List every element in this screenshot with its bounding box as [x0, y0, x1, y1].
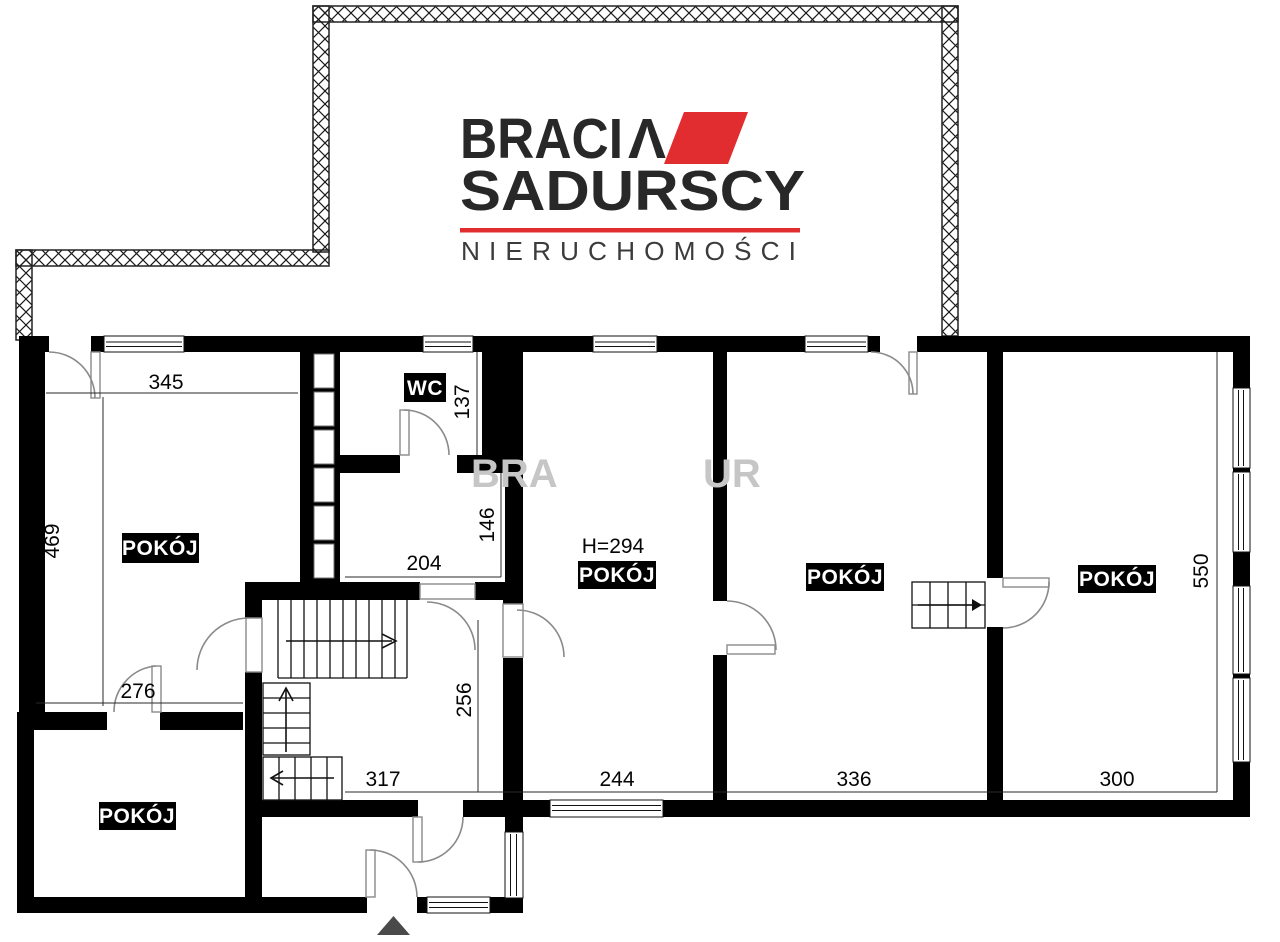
dim-550: 550	[1190, 553, 1213, 588]
door	[49, 352, 100, 398]
room-label-middle: POKÓJ	[578, 561, 656, 589]
door	[1003, 578, 1049, 628]
staircase-winder	[912, 582, 985, 628]
dim-469: 469	[41, 523, 64, 558]
window	[1233, 678, 1250, 762]
watermark-fragment-right: UR	[703, 452, 761, 496]
dim-204: 204	[406, 552, 441, 575]
door	[727, 601, 776, 654]
floor-plan-drawing: 345 469 276 137 146 204 256 317 244 336 …	[0, 0, 1280, 942]
svg-text:POKÓJ: POKÓJ	[1079, 567, 1155, 591]
brand-logo: BRACI Λ SADURSCY NIERUCHOMOŚCI	[460, 107, 805, 266]
dim-336: 336	[836, 768, 871, 791]
room-label-right: POKÓJ	[1078, 565, 1156, 593]
door	[871, 352, 917, 394]
window	[1233, 586, 1250, 674]
dim-244: 244	[599, 768, 634, 791]
door	[420, 584, 475, 650]
watermark: BRA UR	[471, 452, 761, 496]
window	[1233, 472, 1250, 552]
window	[1233, 388, 1250, 468]
window	[427, 897, 490, 913]
ceiling-height-note: H=294	[582, 535, 645, 558]
door	[400, 410, 449, 455]
logo-divider-line	[460, 228, 800, 233]
window	[805, 336, 868, 352]
staircase-down-flight	[263, 683, 310, 755]
svg-text:POKÓJ: POKÓJ	[579, 563, 655, 587]
window	[505, 832, 523, 898]
window	[423, 336, 473, 352]
floor-plan-page: 345 469 276 137 146 204 256 317 244 336 …	[0, 0, 1280, 942]
door	[197, 618, 262, 672]
walls	[17, 336, 1250, 913]
dim-300: 300	[1099, 768, 1134, 791]
dim-137: 137	[451, 384, 474, 419]
logo-subtitle: NIERUCHOMOŚCI	[461, 236, 805, 266]
room-label-336: POKÓJ	[806, 563, 884, 591]
logo-red-parallelogram-icon	[664, 112, 748, 164]
door	[503, 604, 564, 657]
window	[593, 336, 657, 352]
dim-317: 317	[365, 768, 400, 791]
dim-276: 276	[120, 680, 155, 703]
svg-text:POKÓJ: POKÓJ	[122, 536, 198, 560]
room-label-bottom-left: POKÓJ	[99, 802, 176, 830]
entrance-arrow-icon	[377, 916, 410, 935]
window	[104, 336, 184, 352]
room-label-wc: WC	[404, 373, 446, 402]
staircase-lower-flight	[263, 757, 342, 800]
room-label-top-left: POKÓJ	[122, 533, 199, 563]
door	[366, 850, 417, 897]
svg-text:POKÓJ: POKÓJ	[99, 804, 175, 828]
logo-word2: SADURSCY	[460, 159, 805, 223]
dim-256: 256	[453, 682, 476, 717]
dim-146: 146	[476, 507, 499, 542]
window	[550, 800, 663, 817]
staircase-main	[278, 600, 407, 678]
watermark-fragment-left: BRA	[471, 452, 558, 496]
dim-345: 345	[148, 371, 183, 394]
door	[413, 817, 463, 862]
svg-text:WC: WC	[407, 377, 443, 400]
svg-text:POKÓJ: POKÓJ	[807, 565, 883, 589]
